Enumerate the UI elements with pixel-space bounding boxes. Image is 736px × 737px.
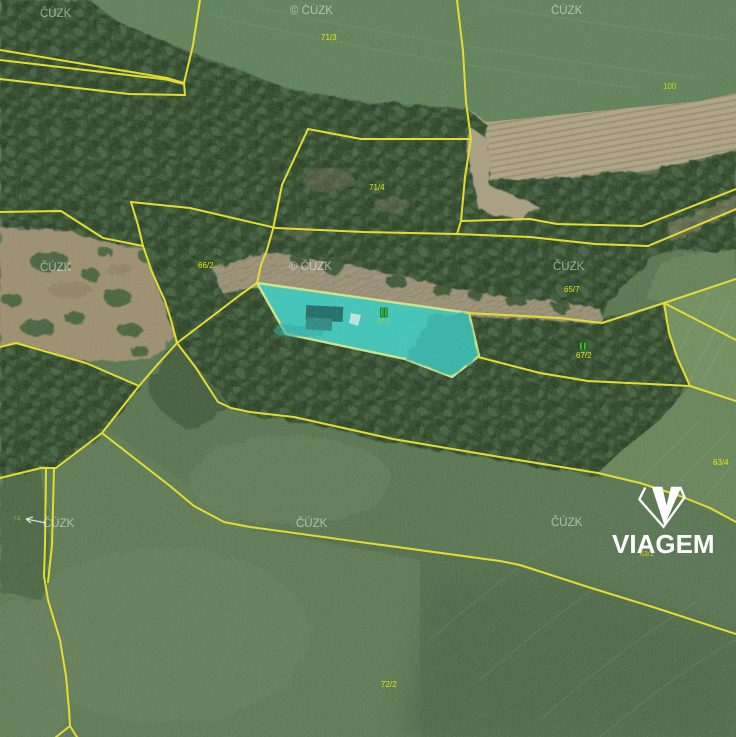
svg-text:ČÚZK: ČÚZK bbox=[551, 4, 583, 17]
svg-text:ČÚZK: ČÚZK bbox=[551, 516, 583, 529]
svg-text:65/7: 65/7 bbox=[564, 285, 580, 294]
svg-text:© ČÚZK: © ČÚZK bbox=[290, 4, 333, 17]
svg-text:63/4: 63/4 bbox=[713, 458, 729, 467]
svg-text:66/2: 66/2 bbox=[198, 261, 214, 270]
svg-text:71/4: 71/4 bbox=[369, 183, 385, 192]
svg-text:© ČÚZK: © ČÚZK bbox=[289, 260, 332, 273]
svg-text:100: 100 bbox=[663, 82, 677, 91]
svg-text:ČÚZK: ČÚZK bbox=[40, 261, 72, 274]
svg-text:67/2: 67/2 bbox=[576, 351, 592, 360]
svg-text:71/3: 71/3 bbox=[321, 33, 337, 42]
svg-text:72/2: 72/2 bbox=[381, 680, 397, 689]
svg-text:ČÚZK: ČÚZK bbox=[43, 517, 75, 530]
svg-text:ČÚZK: ČÚZK bbox=[40, 7, 72, 20]
svg-text:ČÚZK: ČÚZK bbox=[296, 517, 328, 530]
svg-text:74: 74 bbox=[13, 516, 21, 523]
svg-text:ČÚZK: ČÚZK bbox=[553, 260, 585, 273]
svg-text:67/1: 67/1 bbox=[377, 319, 391, 326]
svg-text:VIAGEM: VIAGEM bbox=[612, 529, 715, 559]
